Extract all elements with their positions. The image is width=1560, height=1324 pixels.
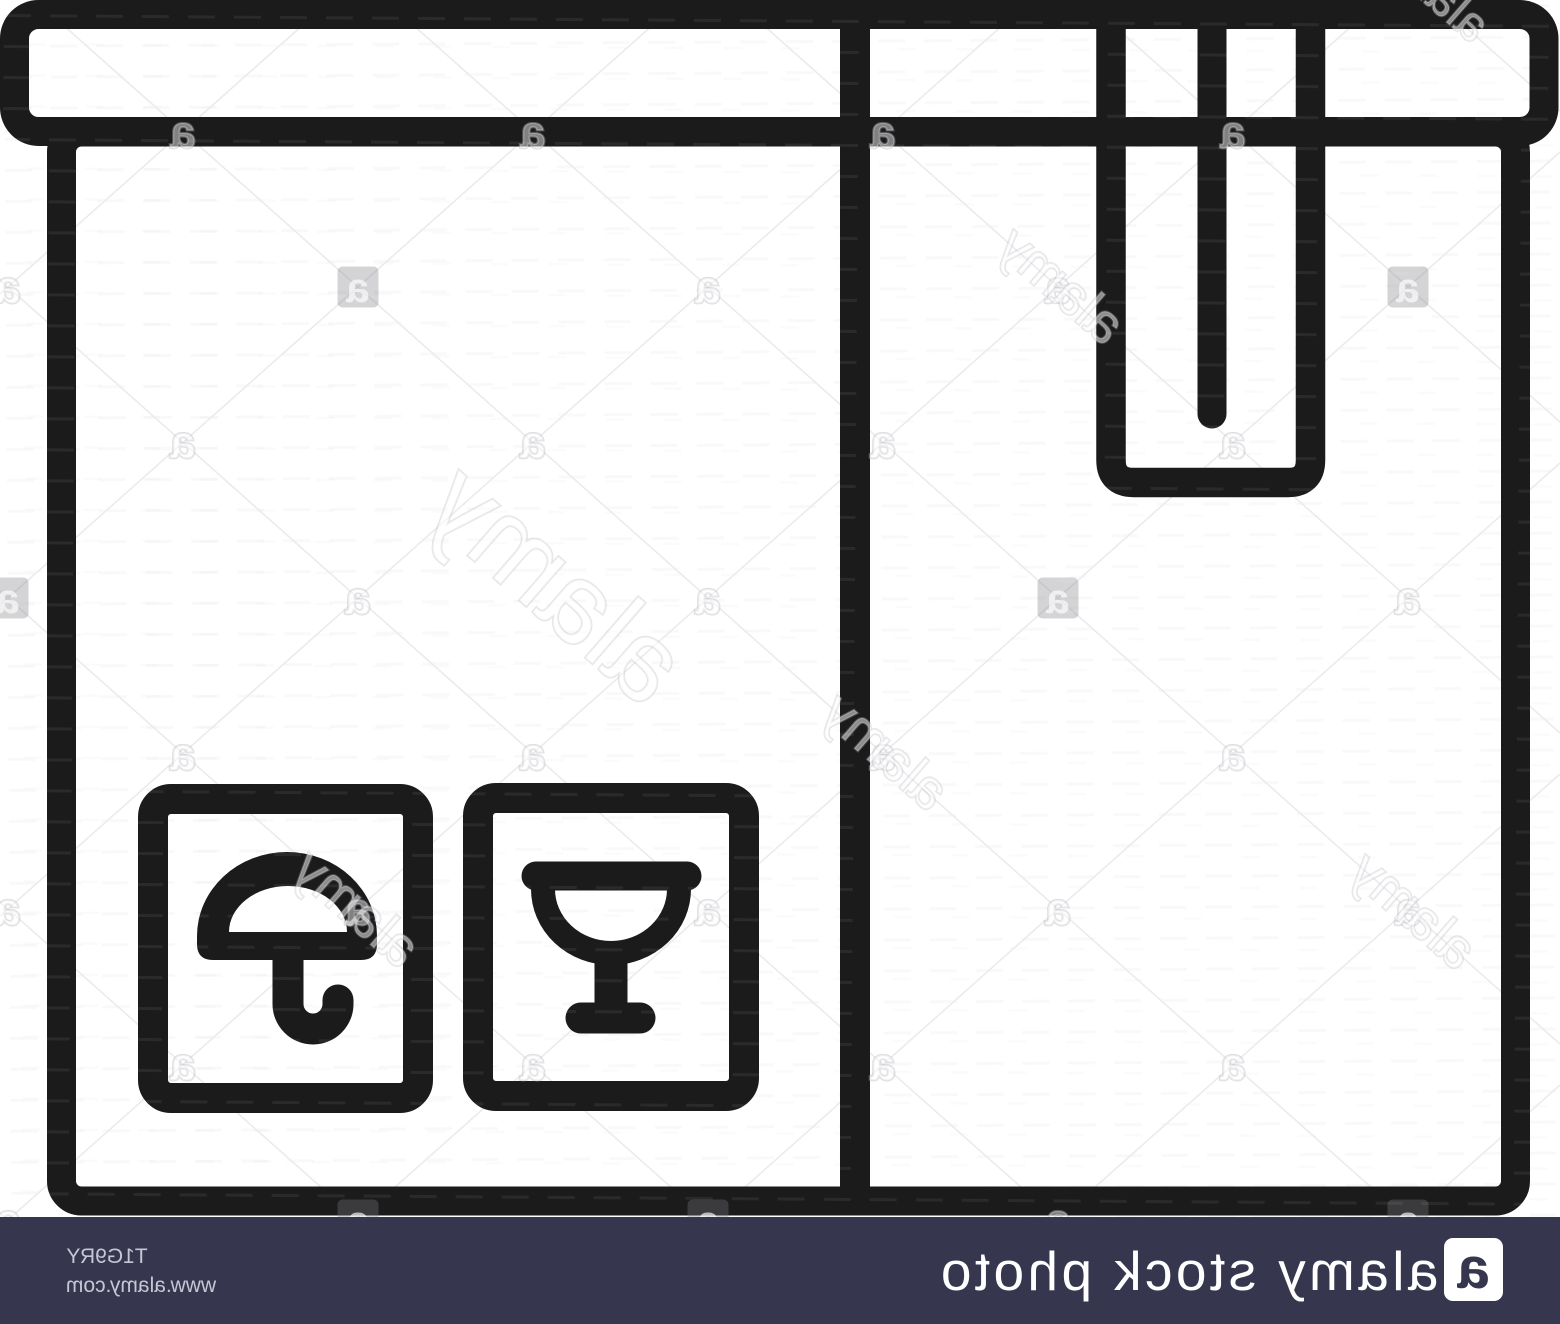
svg-text:a: a [1396, 264, 1420, 311]
svg-text:a: a [520, 728, 546, 780]
svg-text:www.alamy.com: www.alamy.com [66, 1274, 217, 1297]
svg-text:a: a [695, 883, 721, 935]
svg-text:a: a [0, 575, 20, 622]
svg-text:a: a [1395, 572, 1421, 624]
svg-text:a: a [696, 1197, 720, 1244]
svg-text:a: a [1220, 728, 1246, 780]
svg-text:a: a [170, 416, 196, 468]
svg-text:alamy: alamy [1338, 838, 1490, 981]
svg-text:T1G9RY: T1G9RY [66, 1245, 147, 1268]
svg-text:a: a [1220, 1038, 1246, 1090]
svg-text:a: a [170, 106, 196, 158]
svg-text:alamy stock photo: alamy stock photo [937, 1240, 1438, 1302]
svg-text:a: a [170, 1038, 196, 1090]
svg-text:a: a [870, 106, 896, 158]
svg-text:a: a [695, 572, 721, 624]
svg-text:alamy: alamy [1368, 0, 1499, 53]
svg-text:a: a [345, 572, 371, 624]
svg-text:a: a [0, 261, 21, 313]
svg-text:a: a [0, 883, 21, 935]
svg-text:a: a [1396, 1197, 1420, 1244]
svg-text:a: a [1045, 1194, 1071, 1246]
svg-text:a: a [695, 261, 721, 313]
svg-text:a: a [520, 1038, 546, 1090]
svg-text:alamy: alamy [404, 438, 711, 728]
svg-text:alamy: alamy [810, 679, 962, 822]
svg-text:a: a [870, 416, 896, 468]
svg-text:a: a [1045, 883, 1071, 935]
svg-text:a: a [870, 1038, 896, 1090]
svg-text:alamy: alamy [281, 836, 433, 979]
svg-text:a: a [1220, 416, 1246, 468]
svg-text:a: a [0, 1194, 21, 1246]
svg-text:a: a [1046, 575, 1070, 622]
svg-text:a: a [1220, 106, 1246, 158]
svg-text:a: a [520, 416, 546, 468]
svg-text:alamy: alamy [986, 213, 1138, 356]
svg-text:a: a [346, 264, 370, 311]
svg-text:a: a [170, 728, 196, 780]
svg-text:a: a [346, 1197, 370, 1244]
svg-text:a: a [520, 106, 546, 158]
svg-text:a: a [1457, 1236, 1490, 1301]
